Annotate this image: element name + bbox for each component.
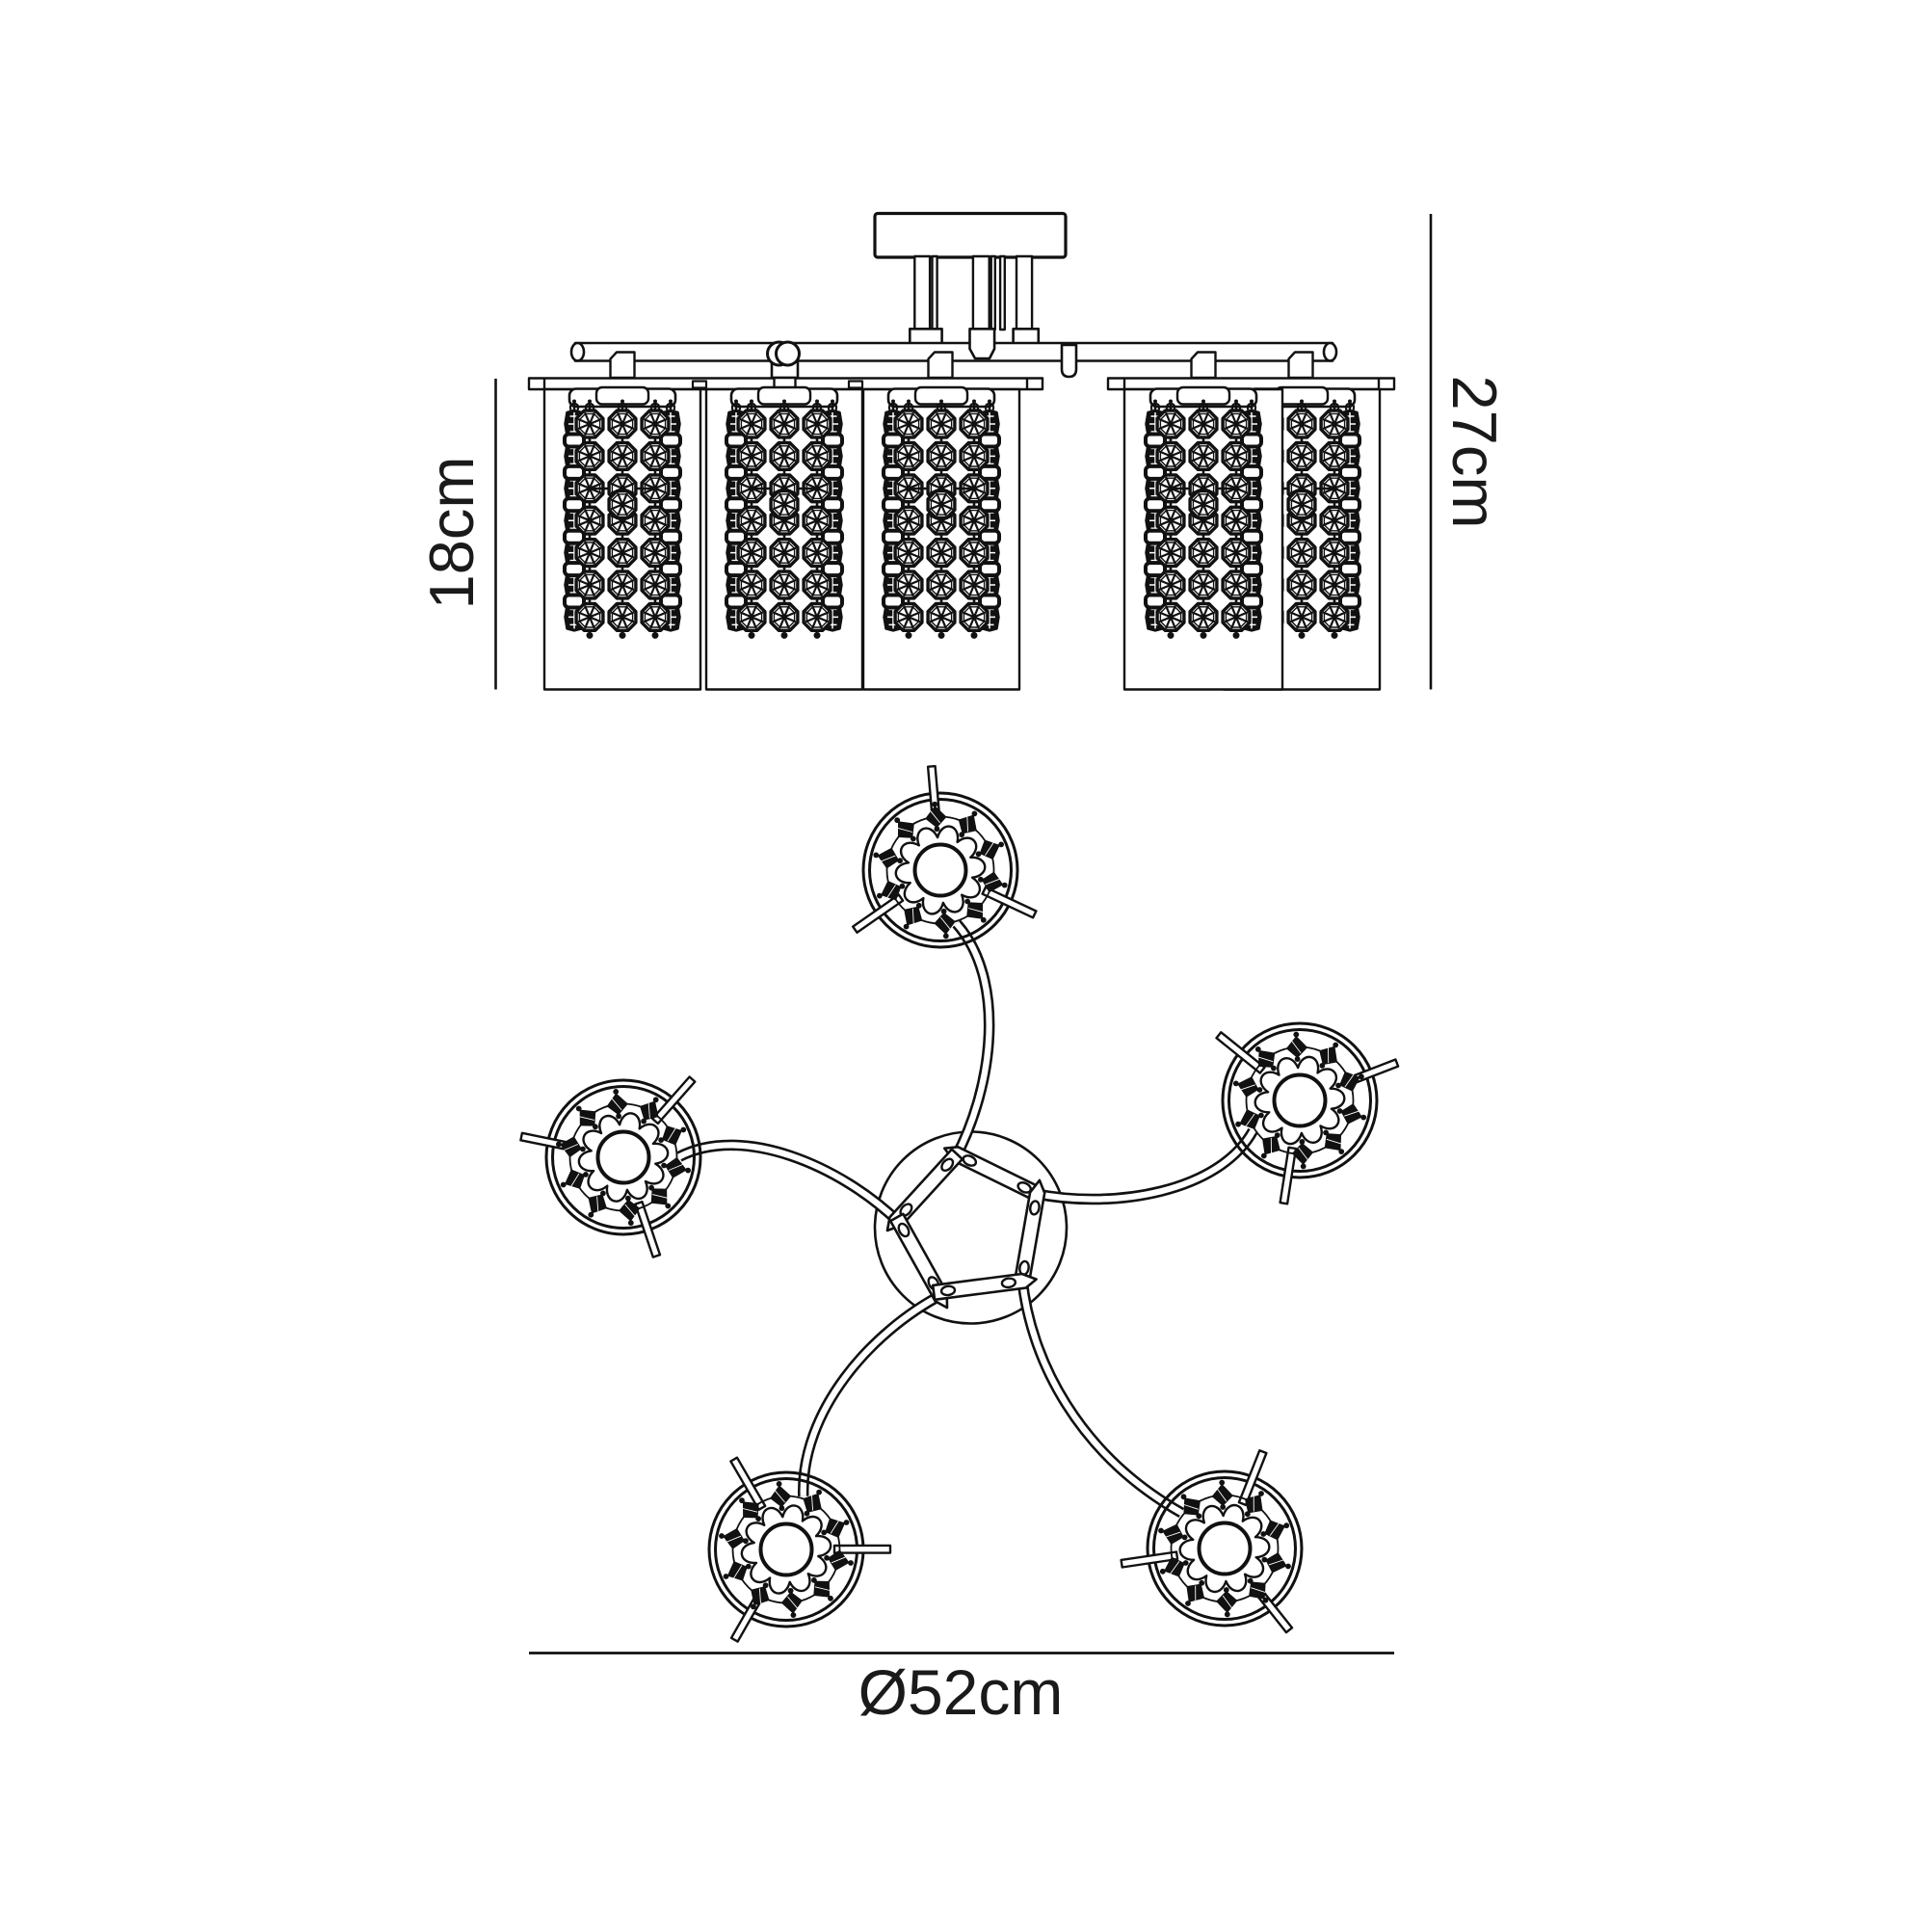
svg-text:18cm: 18cm	[416, 457, 487, 610]
svg-text:27cm: 27cm	[1439, 376, 1510, 529]
svg-text:Ø52cm: Ø52cm	[858, 1656, 1064, 1728]
